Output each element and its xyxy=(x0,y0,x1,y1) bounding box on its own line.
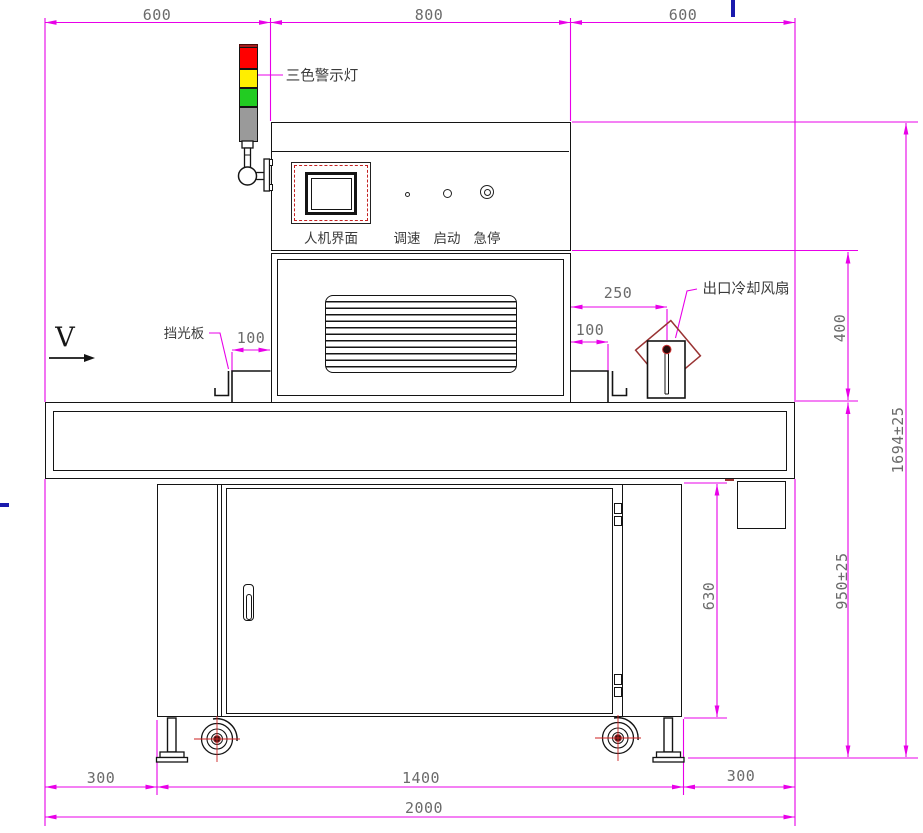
entrance-plate-right xyxy=(571,371,609,402)
label-start-button: 启动 xyxy=(434,227,461,247)
fan-hub xyxy=(663,345,671,353)
extension-lines xyxy=(45,18,918,826)
warning-light-mount xyxy=(239,141,273,191)
dim-top-middle-800: 800 xyxy=(415,6,444,24)
label-outlet-fan: 出口冷却风扇 xyxy=(703,278,790,299)
dim-cabinet-height-630: 630 xyxy=(700,582,718,611)
label-warning-light: 三色警示灯 xyxy=(286,65,359,86)
leveling-foot-right xyxy=(653,718,684,762)
dim-overall-width-2000: 2000 xyxy=(405,799,443,817)
label-hmi-screen: 人机界面 xyxy=(304,227,358,247)
mount-bracket xyxy=(264,159,270,191)
cad-drawing-canvas: 600 800 600 100 100 250 300 1400 300 200… xyxy=(0,0,923,833)
dim-bottom-middle-1400: 1400 xyxy=(402,769,440,787)
label-light-shield: 挡光板 xyxy=(164,322,205,342)
dim-hood-height-400: 400 xyxy=(831,314,849,343)
dim-overall-height-1694: 1694±25 xyxy=(889,407,907,474)
light-shield-bracket-right xyxy=(613,371,627,396)
mount-ball-joint xyxy=(239,167,257,185)
caster-right xyxy=(595,715,641,761)
dimension-lines xyxy=(45,23,906,818)
dim-bottom-left-300: 300 xyxy=(87,769,116,787)
label-flow-direction-v: V xyxy=(55,323,75,354)
linework-layer xyxy=(0,0,923,833)
dim-fan-250: 250 xyxy=(604,284,633,302)
leader-lines xyxy=(209,75,697,369)
dim-left-100: 100 xyxy=(237,329,266,347)
label-estop-button: 急停 xyxy=(474,227,501,247)
dim-belt-height-950: 950±25 xyxy=(833,552,851,609)
dim-right-100: 100 xyxy=(576,321,605,339)
entrance-plate-left xyxy=(232,371,271,402)
dim-top-right-600: 600 xyxy=(669,6,698,24)
outlet-cooling-fan xyxy=(636,321,701,398)
label-speed-knob: 调速 xyxy=(394,227,421,247)
flow-direction-arrow xyxy=(49,354,95,362)
dim-bottom-right-300: 300 xyxy=(727,767,756,785)
light-shield-leader xyxy=(209,333,229,369)
dim-top-left-600: 600 xyxy=(143,6,172,24)
caster-left xyxy=(194,716,240,762)
leveling-foot-left xyxy=(157,718,188,762)
light-shield-bracket-left xyxy=(215,371,229,396)
